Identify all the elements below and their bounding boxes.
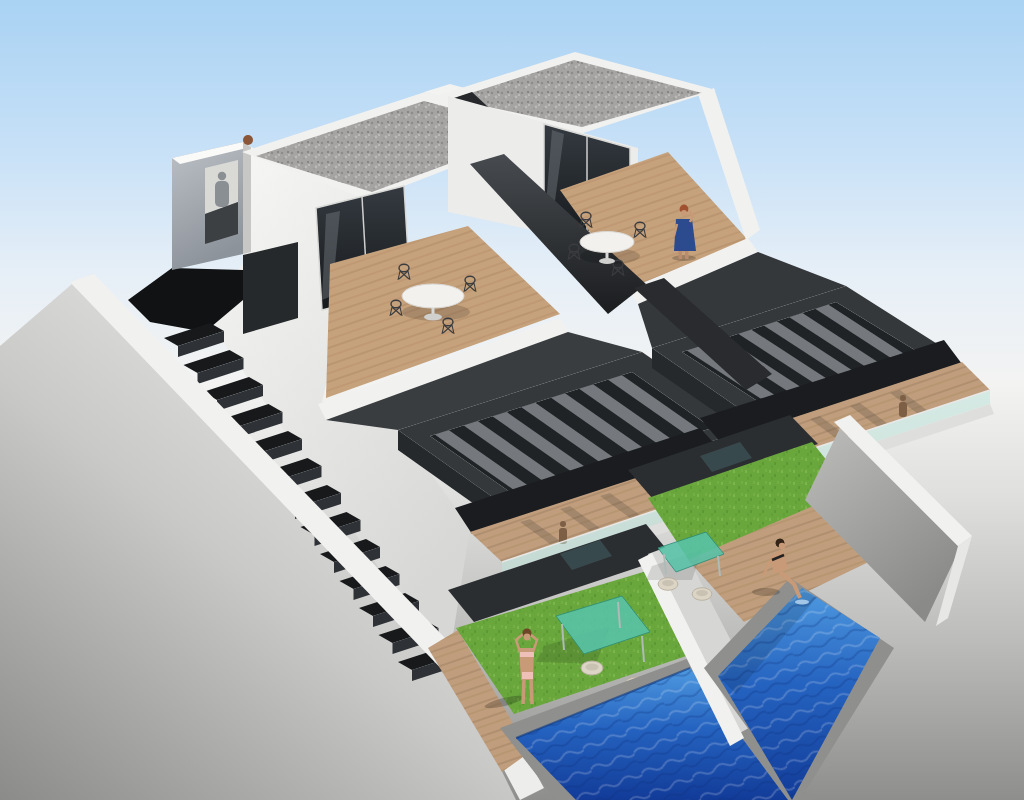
person-shadow (752, 588, 780, 596)
figure-body (899, 402, 907, 417)
figure-head (900, 395, 906, 401)
silhouette-body (215, 181, 229, 207)
parapet-ball-finial (243, 135, 253, 145)
render-canvas: 3D architectural rendering - modern semi… (0, 0, 1024, 800)
stair-entry-opening (243, 242, 298, 334)
bikini-top (520, 652, 534, 657)
small-figure-right (899, 395, 907, 417)
bikini-bottom (522, 672, 533, 679)
water-splash (795, 600, 809, 605)
leg (523, 678, 524, 704)
leg (531, 678, 532, 704)
figure-head (560, 521, 566, 527)
table-base (599, 258, 615, 264)
garden-chair (581, 661, 603, 675)
table-base (424, 314, 442, 321)
person-shadow (672, 255, 696, 261)
silhouette-head (218, 172, 226, 180)
garden-chair (692, 588, 712, 601)
architectural-render: 3D architectural rendering - modern semi… (0, 0, 1024, 800)
face (524, 634, 531, 641)
stair-tower-return (243, 142, 251, 254)
face (681, 210, 687, 216)
round-table-top (402, 284, 464, 308)
face (779, 543, 785, 549)
round-table-top (580, 232, 634, 253)
garden-chair (658, 578, 678, 591)
